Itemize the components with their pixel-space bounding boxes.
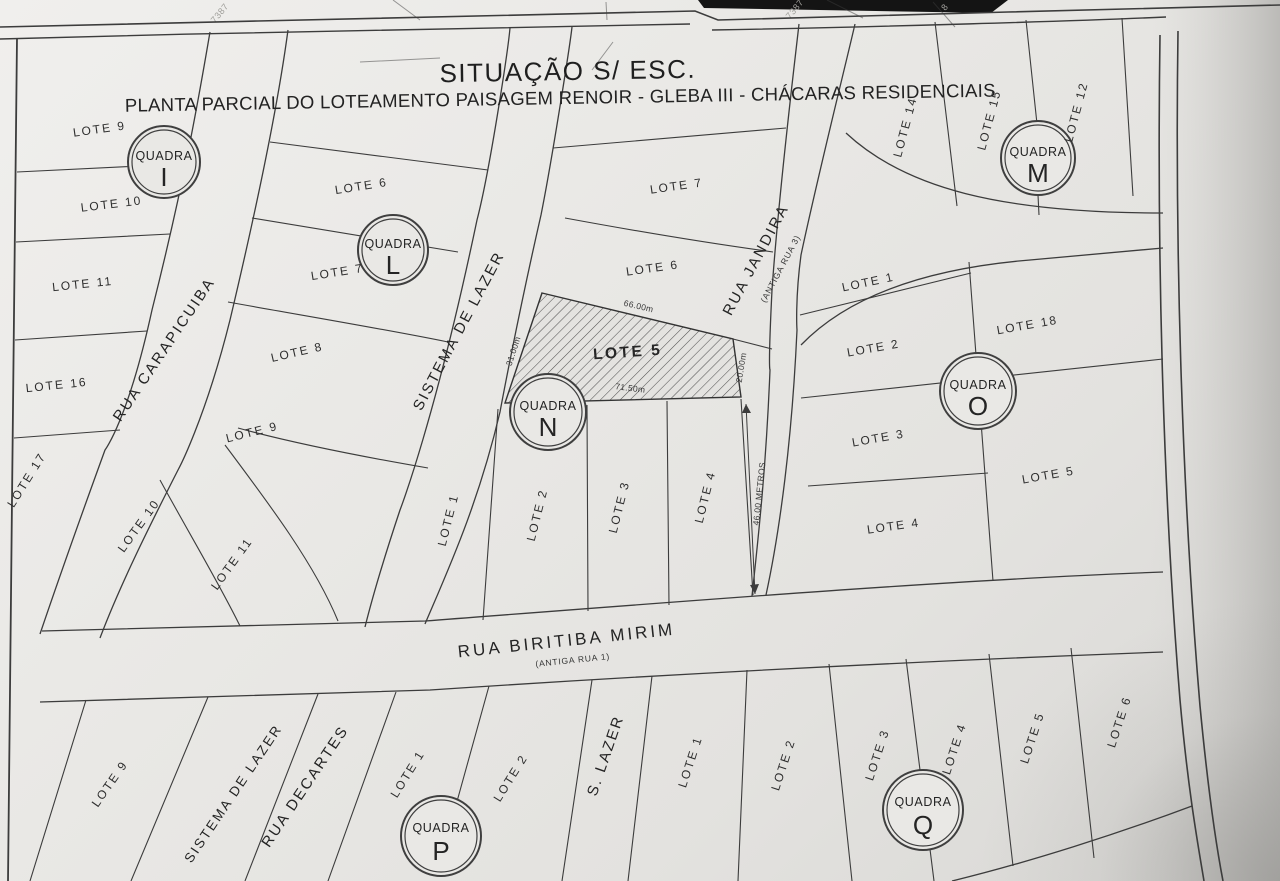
dimension-arrow-bottom [750, 584, 759, 594]
quadra-p-word: QUADRA [412, 821, 469, 835]
inner-top-border [0, 17, 1166, 39]
scanned-plat-sheet: 7387 7387 8 [0, 0, 1280, 881]
quadra-q-word: QUADRA [894, 795, 951, 809]
plat-map-canvas: 7387 7387 8 [0, 0, 1280, 881]
lot-label: LOTE 12 [1061, 80, 1091, 144]
quadra-o-letter: O [968, 391, 988, 421]
lot-label: LOTE 9 [224, 419, 279, 445]
lot-label: LOTE 11 [208, 535, 255, 593]
street-label-carapicuiba: RUA CARAPICUIBA [110, 274, 219, 424]
lot-label: LOTE 7 [649, 175, 704, 196]
lot-label: LOTE 18 [996, 313, 1060, 338]
lot-label: LOTE 1 [388, 748, 428, 801]
lot-label: LOTE 14 [890, 95, 920, 159]
quadra-m-letter: M [1027, 158, 1049, 188]
quadra-m-word: QUADRA [1009, 145, 1066, 159]
lot-label: LOTE 4 [939, 721, 969, 776]
lot-label: LOTE 1 [435, 492, 461, 547]
map-title: SITUAÇÃO S/ ESC. [439, 54, 696, 88]
outer-top-border [0, 5, 1280, 27]
quadra-marker-q: QUADRA Q [883, 770, 963, 850]
lot-label: LOTE 2 [524, 487, 550, 542]
quadra-n-letter: N [539, 412, 558, 442]
lot-label: LOTE 2 [491, 752, 531, 805]
lot-label: LOTE 8 [270, 339, 325, 365]
lot-label: LOTE 7 [310, 261, 365, 283]
quadra-n-word: QUADRA [519, 399, 576, 413]
quadra-p-letter: P [432, 836, 449, 866]
dim-frontage: 46.00 METROS [751, 462, 768, 526]
lot-label: LOTE 2 [768, 737, 798, 792]
lot-label: LOTE 16 [25, 375, 88, 395]
quadra-l-word: QUADRA [364, 237, 421, 251]
quadra-o-word: QUADRA [949, 378, 1006, 392]
lot-label: LOTE 17 [4, 450, 49, 510]
lot-label: LOTE 11 [51, 274, 113, 294]
scan-dark-bar [698, 0, 1008, 13]
quadra-l-letter: L [386, 250, 400, 280]
quadra-marker-o: QUADRA O [940, 353, 1016, 429]
quadra-i-word: QUADRA [135, 149, 192, 163]
lot-label: LOTE 1 [675, 734, 705, 789]
street-label-s-lazer: S. LAZER [584, 713, 628, 798]
lot-label: LOTE 3 [862, 727, 892, 782]
lot-label: LOTE 10 [115, 496, 163, 554]
quadra-marker-n: QUADRA N [510, 374, 586, 450]
lot-label: LOTE 2 [846, 337, 901, 360]
lot-label: LOTE 3 [606, 479, 632, 534]
quadra-i-letter: I [160, 162, 167, 192]
quadra-marker-l: QUADRA L [358, 215, 428, 285]
lot-label: LOTE 1 [841, 270, 896, 295]
lot-label: LOTE 3 [851, 427, 906, 450]
quadra-q-letter: Q [913, 810, 933, 840]
title-block: SITUAÇÃO S/ ESC. PLANTA PARCIAL DO LOTEA… [124, 49, 996, 116]
dimension-arrow-top [742, 404, 751, 413]
quadra-marker-p: QUADRA P [401, 796, 481, 876]
lot-label: LOTE 6 [334, 175, 389, 197]
lot-label: LOTE 9 [89, 758, 131, 810]
quadra-i-east-lot-lines [160, 428, 428, 626]
street-label-biritiba-old: (ANTIGA RUA 1) [535, 651, 611, 669]
lot-label: LOTE 10 [80, 193, 143, 214]
lot-label: LOTE 5 [1021, 464, 1076, 487]
lot-label: LOTE 4 [866, 515, 921, 536]
street-m-o-bottom-edge [801, 248, 1163, 345]
lot-label: LOTE 6 [625, 257, 680, 278]
lot-label: LOTE 4 [692, 469, 718, 524]
rua-jandira-east-edge [766, 24, 855, 595]
street-label-sistema-lazer-top: SISTEMA DE LAZER [410, 248, 508, 413]
quadra-marker-i: QUADRA I [128, 126, 200, 198]
street-labels: RUA CARAPICUIBA SISTEMA DE LAZER RUA JAN… [110, 201, 803, 865]
lot-label: LOTE 9 [72, 118, 127, 139]
dim-top: 66.00m [623, 298, 655, 315]
left-border [8, 38, 17, 881]
